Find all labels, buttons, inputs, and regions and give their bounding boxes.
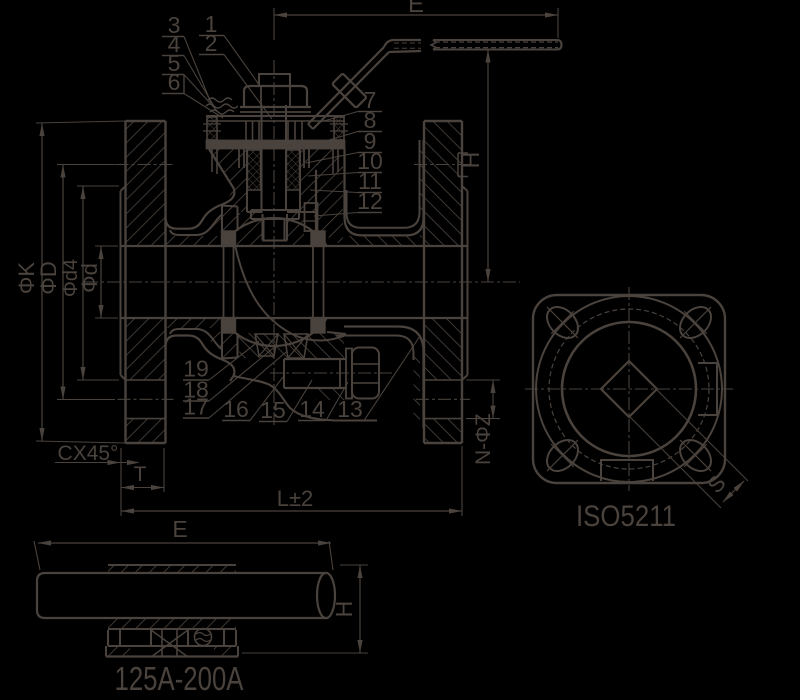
svg-text:H: H (458, 152, 484, 169)
svg-text:Φd: Φd (77, 263, 102, 293)
svg-text:6: 6 (168, 69, 181, 95)
svg-text:E: E (172, 516, 187, 542)
svg-text:ΦD: ΦD (36, 261, 61, 294)
svg-text:16: 16 (223, 396, 249, 422)
svg-text:T: T (134, 463, 147, 486)
svg-text:125A-200A: 125A-200A (115, 660, 244, 697)
svg-text:E: E (408, 0, 424, 18)
svg-text:2: 2 (205, 30, 218, 56)
svg-text:12: 12 (357, 188, 383, 214)
svg-text:17: 17 (183, 394, 209, 420)
svg-text:15: 15 (260, 397, 286, 423)
svg-text:13: 13 (337, 396, 363, 422)
svg-text:N-ΦZ: N-ΦZ (472, 413, 495, 465)
svg-text:H: H (331, 601, 357, 618)
svg-text:ISO5211: ISO5211 (576, 500, 676, 533)
svg-text:14: 14 (299, 396, 325, 422)
svg-text:L±2: L±2 (277, 486, 314, 511)
